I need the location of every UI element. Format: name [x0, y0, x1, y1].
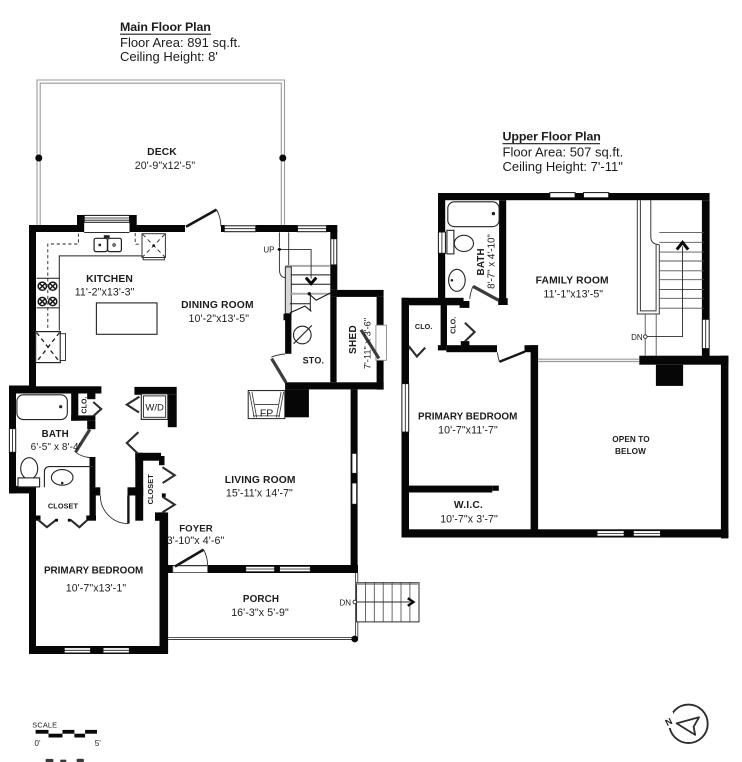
svg-text:5': 5' [95, 739, 101, 748]
svg-text:15'-11'x 14'-7": 15'-11'x 14'-7" [226, 488, 293, 500]
svg-text:FP: FP [260, 408, 273, 420]
svg-text:BATH: BATH [42, 429, 69, 440]
svg-text:DINING ROOM: DINING ROOM [181, 300, 254, 311]
svg-text:UP: UP [263, 245, 274, 254]
svg-text:Floor Area: 891 sq.ft.: Floor Area: 891 sq.ft. [120, 35, 241, 50]
svg-text:PRIMARY BEDROOM: PRIMARY BEDROOM [44, 565, 143, 576]
svg-text:DN: DN [631, 333, 643, 342]
svg-text:DN: DN [339, 599, 351, 608]
svg-text:KITCHEN: KITCHEN [86, 274, 133, 285]
svg-text:10'-2"x13'-5": 10'-2"x13'-5" [189, 313, 250, 325]
svg-text:CLO.: CLO. [82, 396, 89, 413]
svg-text:3'-10"x 4'-6": 3'-10"x 4'-6" [167, 535, 225, 547]
svg-text:W/D: W/D [145, 402, 164, 413]
svg-text:8'-7" x 4'-10": 8'-7" x 4'-10" [487, 234, 498, 289]
svg-text:Upper Floor Plan: Upper Floor Plan [503, 130, 601, 144]
svg-text:Main Floor Plan: Main Floor Plan [120, 20, 211, 34]
svg-text:BATH: BATH [476, 248, 487, 275]
svg-text:BELOW: BELOW [615, 447, 646, 456]
svg-text:DECK: DECK [147, 147, 177, 158]
svg-text:CLO.: CLO. [415, 322, 433, 331]
svg-text:20'-9"x12'-5": 20'-9"x12'-5" [135, 160, 196, 172]
svg-text:6'-5" x 8'-4": 6'-5" x 8'-4" [31, 442, 83, 453]
svg-text:SHED: SHED [348, 325, 359, 354]
svg-text:Ceiling Height: 8': Ceiling Height: 8' [120, 49, 218, 64]
svg-text:SCALE: SCALE [32, 720, 57, 729]
svg-text:PORCH: PORCH [243, 594, 279, 605]
svg-text:Ceiling Height: 7'-11": Ceiling Height: 7'-11" [503, 159, 624, 174]
svg-text:OPEN TO: OPEN TO [612, 435, 650, 444]
svg-text:CLOSET: CLOSET [48, 501, 79, 510]
svg-text:LIVING ROOM: LIVING ROOM [225, 475, 296, 486]
svg-text:W.I.C.: W.I.C. [454, 500, 483, 511]
svg-text:11'-1"x13'-5": 11'-1"x13'-5" [543, 288, 603, 300]
svg-text:7'-11" x 3'-6": 7'-11" x 3'-6" [362, 318, 372, 369]
svg-text:10'-7"x11'-7": 10'-7"x11'-7" [438, 424, 498, 436]
svg-text:STO.: STO. [303, 355, 325, 365]
svg-text:11'-2"x13'-3": 11'-2"x13'-3" [75, 287, 135, 299]
svg-text:PRIMARY BEDROOM: PRIMARY BEDROOM [418, 412, 517, 423]
svg-text:CLOSET: CLOSET [146, 474, 155, 505]
svg-text:10'-7"x 3'-7": 10'-7"x 3'-7" [440, 514, 498, 526]
svg-text:16'-3"x 5'-9": 16'-3"x 5'-9" [231, 607, 289, 619]
svg-text:Floor Area: 507 sq.ft.: Floor Area: 507 sq.ft. [503, 145, 624, 160]
svg-text:0': 0' [35, 739, 41, 748]
svg-text:10'-7"x13'-1": 10'-7"x13'-1" [66, 583, 127, 595]
svg-text:FOYER: FOYER [179, 524, 213, 535]
svg-text:FAMILY ROOM: FAMILY ROOM [536, 275, 609, 286]
svg-text:CLO.: CLO. [451, 317, 458, 334]
